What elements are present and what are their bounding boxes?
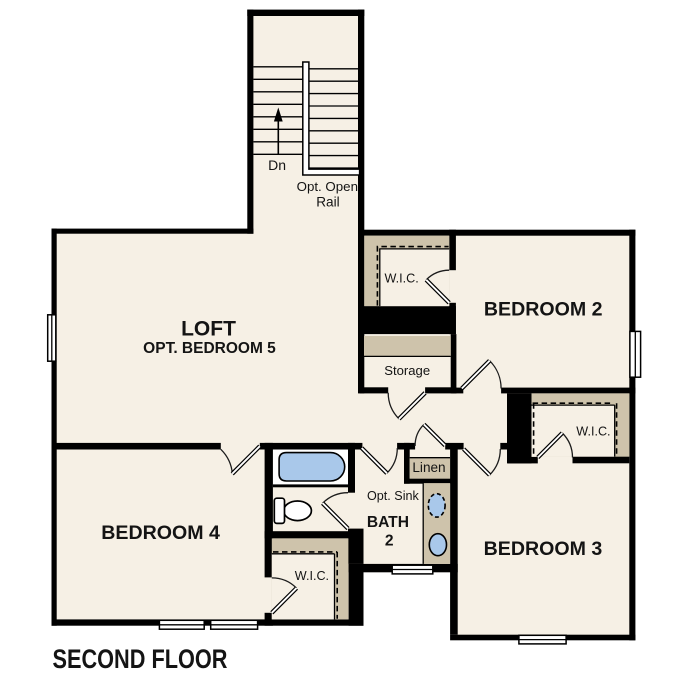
svg-text:BEDROOM 4: BEDROOM 4 (101, 522, 220, 544)
svg-text:Dn: Dn (268, 157, 286, 173)
svg-text:SECOND FLOOR: SECOND FLOOR (53, 644, 228, 674)
svg-text:Storage: Storage (384, 363, 430, 378)
svg-text:Opt. Open: Opt. Open (297, 179, 358, 194)
svg-text:W.I.C.: W.I.C. (295, 569, 329, 583)
svg-text:Opt. Sink: Opt. Sink (367, 489, 419, 503)
svg-text:BEDROOM 3: BEDROOM 3 (484, 538, 603, 560)
svg-text:OPT. BEDROOM 5: OPT. BEDROOM 5 (143, 340, 276, 357)
svg-text:LOFT: LOFT (181, 317, 236, 340)
svg-text:BATH: BATH (367, 514, 409, 531)
svg-text:W.I.C.: W.I.C. (384, 271, 418, 285)
svg-text:Linen: Linen (412, 460, 445, 475)
svg-text:Rail: Rail (316, 195, 339, 210)
svg-text:BEDROOM 2: BEDROOM 2 (484, 299, 603, 321)
svg-text:W.I.C.: W.I.C. (576, 425, 610, 439)
svg-text:2: 2 (385, 532, 394, 549)
